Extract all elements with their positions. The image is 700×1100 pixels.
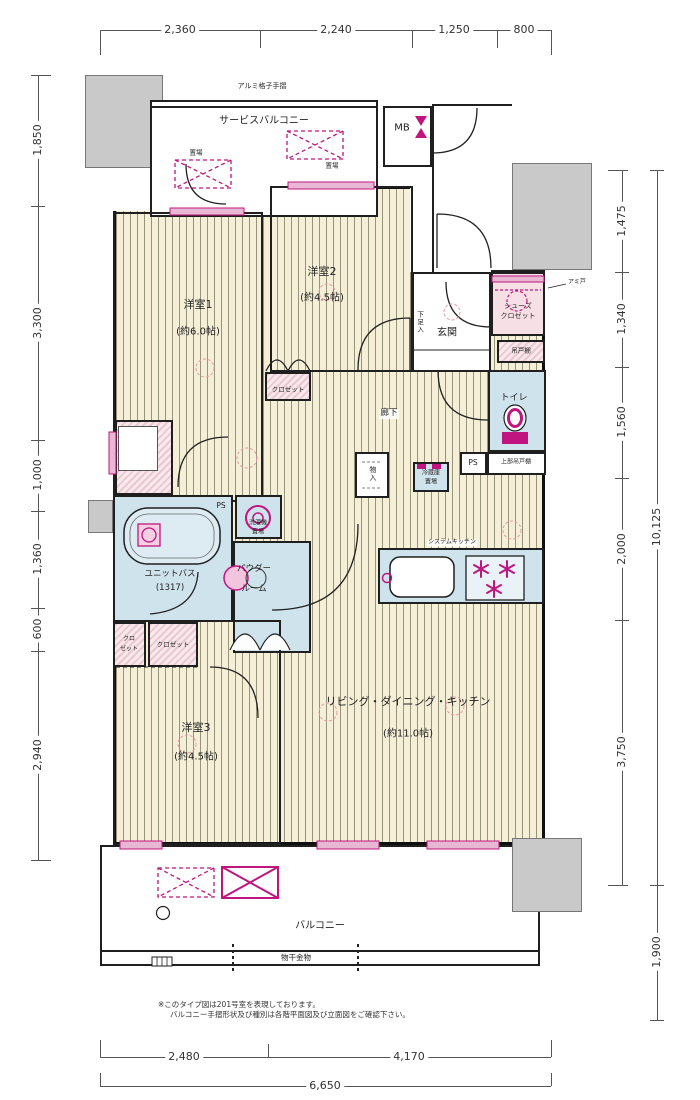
- mb-label: MB: [394, 122, 410, 133]
- fixtures-overlay: [0, 0, 700, 1100]
- bedroom3-label: 洋室3: [182, 722, 211, 734]
- ps2-label: PS: [468, 459, 477, 467]
- genkan-label: 玄関: [437, 327, 457, 338]
- fridge-label2: 置場: [425, 480, 437, 487]
- shoes-closet-label2: クロゼット: [501, 313, 536, 321]
- dim-bottom-0: 2,480: [165, 1051, 203, 1063]
- dim-tick: [31, 860, 51, 861]
- dim-right-outer-line: [657, 170, 658, 1020]
- dim-tick: [31, 651, 45, 652]
- dim-tick: [608, 170, 628, 171]
- amido-label: アミ戸: [568, 280, 586, 287]
- balcony-label: バルコニー: [295, 920, 345, 931]
- okiba-label: 置場: [326, 162, 339, 169]
- shoes-closet-label1: シューズ: [504, 303, 532, 311]
- closet2-label: クロゼット: [272, 386, 305, 393]
- dim-tick: [615, 478, 629, 479]
- dim-tick: [615, 367, 629, 368]
- dim-right-lower: 1,900: [651, 933, 663, 971]
- tsuridana-label: 吊戸棚: [511, 347, 531, 354]
- dim-tick: [260, 30, 261, 48]
- dim-tick: [31, 75, 51, 76]
- dim-tick: [615, 272, 629, 273]
- closet-label: クロゼット: [157, 641, 190, 648]
- dim-tick: [31, 440, 45, 441]
- dim-tick: [100, 1040, 101, 1057]
- dim-right-2: 1,560: [616, 403, 628, 441]
- dim-bottom-total: 6,650: [306, 1080, 344, 1092]
- dim-tick: [615, 620, 629, 621]
- dim-tick: [100, 1073, 101, 1086]
- dim-right-3: 2,000: [616, 530, 628, 568]
- dim-left-2: 1,000: [32, 456, 44, 494]
- dim-top-2: 1,250: [435, 24, 473, 36]
- dim-right-4: 3,750: [616, 733, 628, 771]
- laundry-label1: 洗濯機: [249, 521, 267, 528]
- dim-tick: [650, 1020, 664, 1021]
- powder-label2: ルーム: [241, 585, 266, 595]
- floor-plan: アルミ格子手摺 サービスバルコニー MB 置場 置場 洋室1 (約6.0帖) 洋…: [0, 0, 700, 1100]
- handrail-label: アルミ格子手摺: [238, 83, 287, 91]
- dim-tick: [100, 30, 101, 55]
- dim-tick: [497, 30, 498, 48]
- dim-top-0: 2,360: [161, 24, 199, 36]
- dim-tick: [412, 30, 413, 48]
- upper-cabinet-label: 上部吊戸棚: [501, 460, 531, 467]
- fridge-label1: 冷蔵庫: [422, 471, 440, 478]
- dim-tick: [31, 511, 45, 512]
- service-balcony-label: サービスバルコニー: [219, 115, 309, 126]
- bedroom2-label: 洋室2: [308, 266, 337, 278]
- dim-tick: [608, 885, 628, 886]
- dim-top-3: 800: [511, 24, 538, 36]
- getabako-label: 下足入: [415, 311, 422, 334]
- dim-tick: [268, 1044, 269, 1057]
- dim-tick: [551, 30, 552, 55]
- closet-small-label2: ゼット: [120, 647, 138, 654]
- bedroom2-size: (約4.5帖): [300, 292, 344, 303]
- ldk-label: リビング・ダイニング・キッチン: [326, 696, 491, 708]
- ps1-label: PS: [216, 502, 225, 510]
- dim-left-4: 600: [32, 616, 44, 643]
- laundry-label2: 置場: [252, 530, 264, 537]
- bedroom1-size: (約6.0帖): [176, 326, 220, 337]
- okiba-label: 置場: [190, 149, 203, 156]
- dim-tick: [551, 1073, 552, 1086]
- dim-left-1: 3,300: [32, 304, 44, 342]
- unit-bath-size: (1317): [156, 584, 184, 594]
- dim-top-1: 2,240: [317, 24, 355, 36]
- dim-tick: [31, 206, 45, 207]
- footnote-line2: バルコニー手摺形状及び種別は各階平面図及び立面図をご確認下さい。: [170, 1009, 410, 1020]
- dim-left-5: 2,940: [32, 736, 44, 774]
- ldk-size: (約11.0帖): [383, 728, 433, 739]
- dim-right-line: [622, 170, 623, 885]
- dim-bottom-1: 4,170: [390, 1051, 428, 1063]
- dim-tick: [650, 170, 664, 171]
- dim-tick: [31, 608, 45, 609]
- dim-tick: [551, 1040, 552, 1057]
- closet-small-label1: クロ: [123, 637, 135, 644]
- dim-tick: [650, 885, 664, 886]
- dim-right-1: 1,340: [616, 300, 628, 338]
- dim-right-total: 10,125: [651, 505, 663, 550]
- bedroom1-label: 洋室1: [184, 299, 213, 311]
- dim-left-0: 1,850: [32, 121, 44, 159]
- dim-left-3: 1,360: [32, 540, 44, 578]
- corridor-label: 廊下: [379, 409, 398, 419]
- powder-label1: パウダー: [237, 565, 271, 575]
- dim-right-0: 1,475: [616, 202, 628, 240]
- toilet-label: トイレ: [500, 393, 527, 403]
- unit-bath-label: ユニットバス: [144, 570, 195, 580]
- bedroom3-size: (約4.5帖): [174, 751, 218, 762]
- kitchen-label: システムキッチン: [427, 540, 477, 547]
- hanger-label: 物干金物: [280, 954, 312, 962]
- monoire-label: 物入: [368, 466, 376, 482]
